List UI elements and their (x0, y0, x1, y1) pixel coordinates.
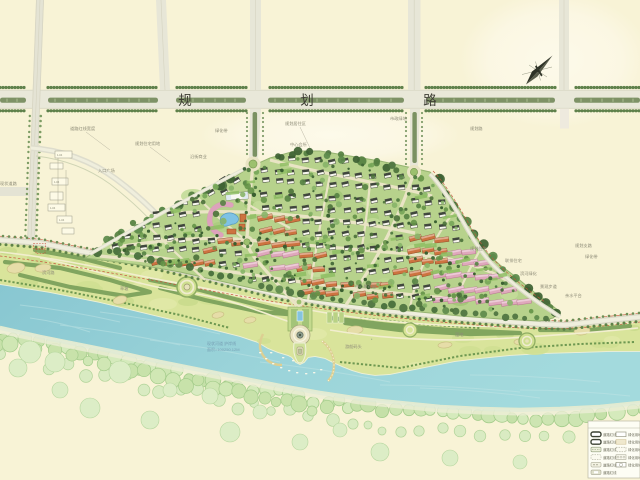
svg-text:绿化用地: 绿化用地 (628, 432, 640, 437)
svg-text:沿街商业: 沿街商业 (190, 153, 207, 160)
svg-text:规划路: 规划路 (470, 125, 483, 132)
svg-text:游船码头: 游船码头 (345, 343, 362, 350)
svg-text:绿化带: 绿化带 (585, 253, 598, 260)
svg-text:亲水平台: 亲水平台 (565, 292, 582, 299)
svg-text:规划住宅: 规划住宅 (470, 245, 487, 252)
svg-text:面积=100250.12M: 面积=100250.12M (207, 346, 240, 352)
svg-text:划: 划 (300, 93, 314, 108)
svg-text:绿化带: 绿化带 (215, 127, 228, 134)
svg-text:绿化用地: 绿化用地 (628, 455, 640, 460)
svg-text:中心会所: 中心会所 (290, 141, 307, 148)
svg-text:规: 规 (178, 93, 192, 108)
svg-text:规划居住区: 规划居住区 (285, 120, 306, 127)
svg-text:规划支路: 规划支路 (575, 242, 593, 249)
svg-text:1-04: 1-04 (57, 153, 63, 157)
svg-text:道路红线宽度: 道路红线宽度 (70, 125, 96, 132)
svg-text:景观步道: 景观步道 (540, 283, 558, 290)
svg-text:道路红线: 道路红线 (603, 455, 617, 460)
svg-text:入口广场: 入口广场 (98, 167, 115, 174)
svg-text:1-04: 1-04 (50, 206, 56, 210)
svg-text:滨河绿化: 滨河绿化 (520, 270, 538, 277)
svg-text:草坡: 草坡 (120, 285, 129, 292)
svg-text:中心景观轴: 中心景观轴 (355, 283, 376, 290)
svg-text:市政绿地: 市政绿地 (390, 115, 408, 122)
svg-text:现状道路: 现状道路 (0, 180, 18, 187)
svg-text:1-04: 1-04 (54, 180, 60, 184)
svg-text:规划住宅用地: 规划住宅用地 (135, 140, 161, 147)
svg-text:道路红线: 道路红线 (603, 432, 617, 437)
svg-text:湿地: 湿地 (455, 331, 464, 338)
svg-text:道路红线: 道路红线 (603, 462, 617, 467)
svg-text:1-04: 1-04 (59, 218, 65, 222)
svg-text:路: 路 (423, 93, 437, 108)
svg-text:道路红线: 道路红线 (603, 440, 617, 445)
svg-text:联排住宅: 联排住宅 (505, 257, 522, 264)
svg-text:道路红线: 道路红线 (603, 447, 617, 452)
svg-text:现状河道 护岸线: 现状河道 护岸线 (207, 340, 236, 346)
svg-text:道路红线: 道路红线 (603, 470, 617, 475)
svg-text:绿化用地: 绿化用地 (628, 440, 640, 445)
svg-text:绿化用地: 绿化用地 (628, 462, 640, 467)
svg-text:滨河路: 滨河路 (42, 269, 55, 276)
svg-text:绿化用地: 绿化用地 (628, 447, 640, 452)
